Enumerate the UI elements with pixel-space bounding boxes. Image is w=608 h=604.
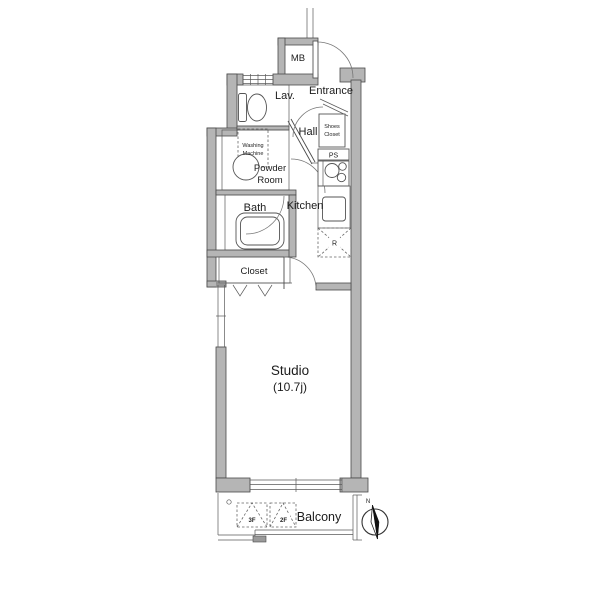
compass-north-label: N: [366, 499, 370, 505]
powder-room-label-1: Powder: [254, 163, 286, 174]
hall-label: Hall: [299, 126, 318, 138]
floor-plan-page: MB Lav. Entrance Hall Washing Machine Sh…: [0, 0, 608, 604]
balcony-label: Balcony: [297, 510, 342, 524]
studio-door: [284, 257, 316, 289]
window-top: [243, 74, 273, 85]
powder-room-label-2: Room: [257, 175, 282, 186]
closet-bifold-doors: [233, 285, 272, 296]
kitchen-sink-icon: [323, 197, 346, 221]
hatch-3f-label: 3F: [248, 518, 255, 524]
toilet-icon: [239, 94, 267, 122]
floor-plan: MB Lav. Entrance Hall Washing Machine Sh…: [0, 0, 608, 604]
window-bottom: [250, 478, 342, 492]
washing-machine-label-1: Washing: [242, 143, 263, 149]
washing-machine-label-2: Machine: [243, 151, 264, 157]
north-compass-icon: [362, 505, 388, 539]
refrigerator-label: R: [332, 241, 337, 248]
hatch-2f-label: 2F: [280, 518, 287, 524]
lavatory-label: Lav.: [275, 90, 295, 102]
stove-icon: [318, 161, 349, 186]
ps-label: PS: [329, 153, 339, 160]
pipe-lines: [307, 8, 313, 38]
balcony-railing: [218, 530, 353, 542]
kitchen-label: Kitchen: [287, 200, 324, 212]
railing-post: [253, 536, 266, 542]
balcony-partition: [353, 495, 362, 540]
closet-label: Closet: [241, 266, 268, 277]
entrance-door-leaf: [313, 41, 318, 78]
entrance-step-lines: [320, 99, 348, 116]
entrance-label: Entrance: [309, 85, 353, 97]
shoes-closet-box: [319, 114, 345, 147]
drain-mark: [227, 500, 231, 504]
shoes-closet-label-2: Closet: [324, 132, 340, 138]
studio-size-label: (10.7j): [273, 380, 307, 394]
shoes-closet-label-1: Shoes: [324, 124, 340, 130]
studio-label: Studio: [271, 363, 309, 378]
meter-box-label: MB: [291, 53, 305, 64]
bath-label: Bath: [244, 202, 267, 214]
walls: [207, 38, 368, 492]
studio-door-arc: [284, 257, 316, 289]
window-left: [216, 285, 226, 347]
